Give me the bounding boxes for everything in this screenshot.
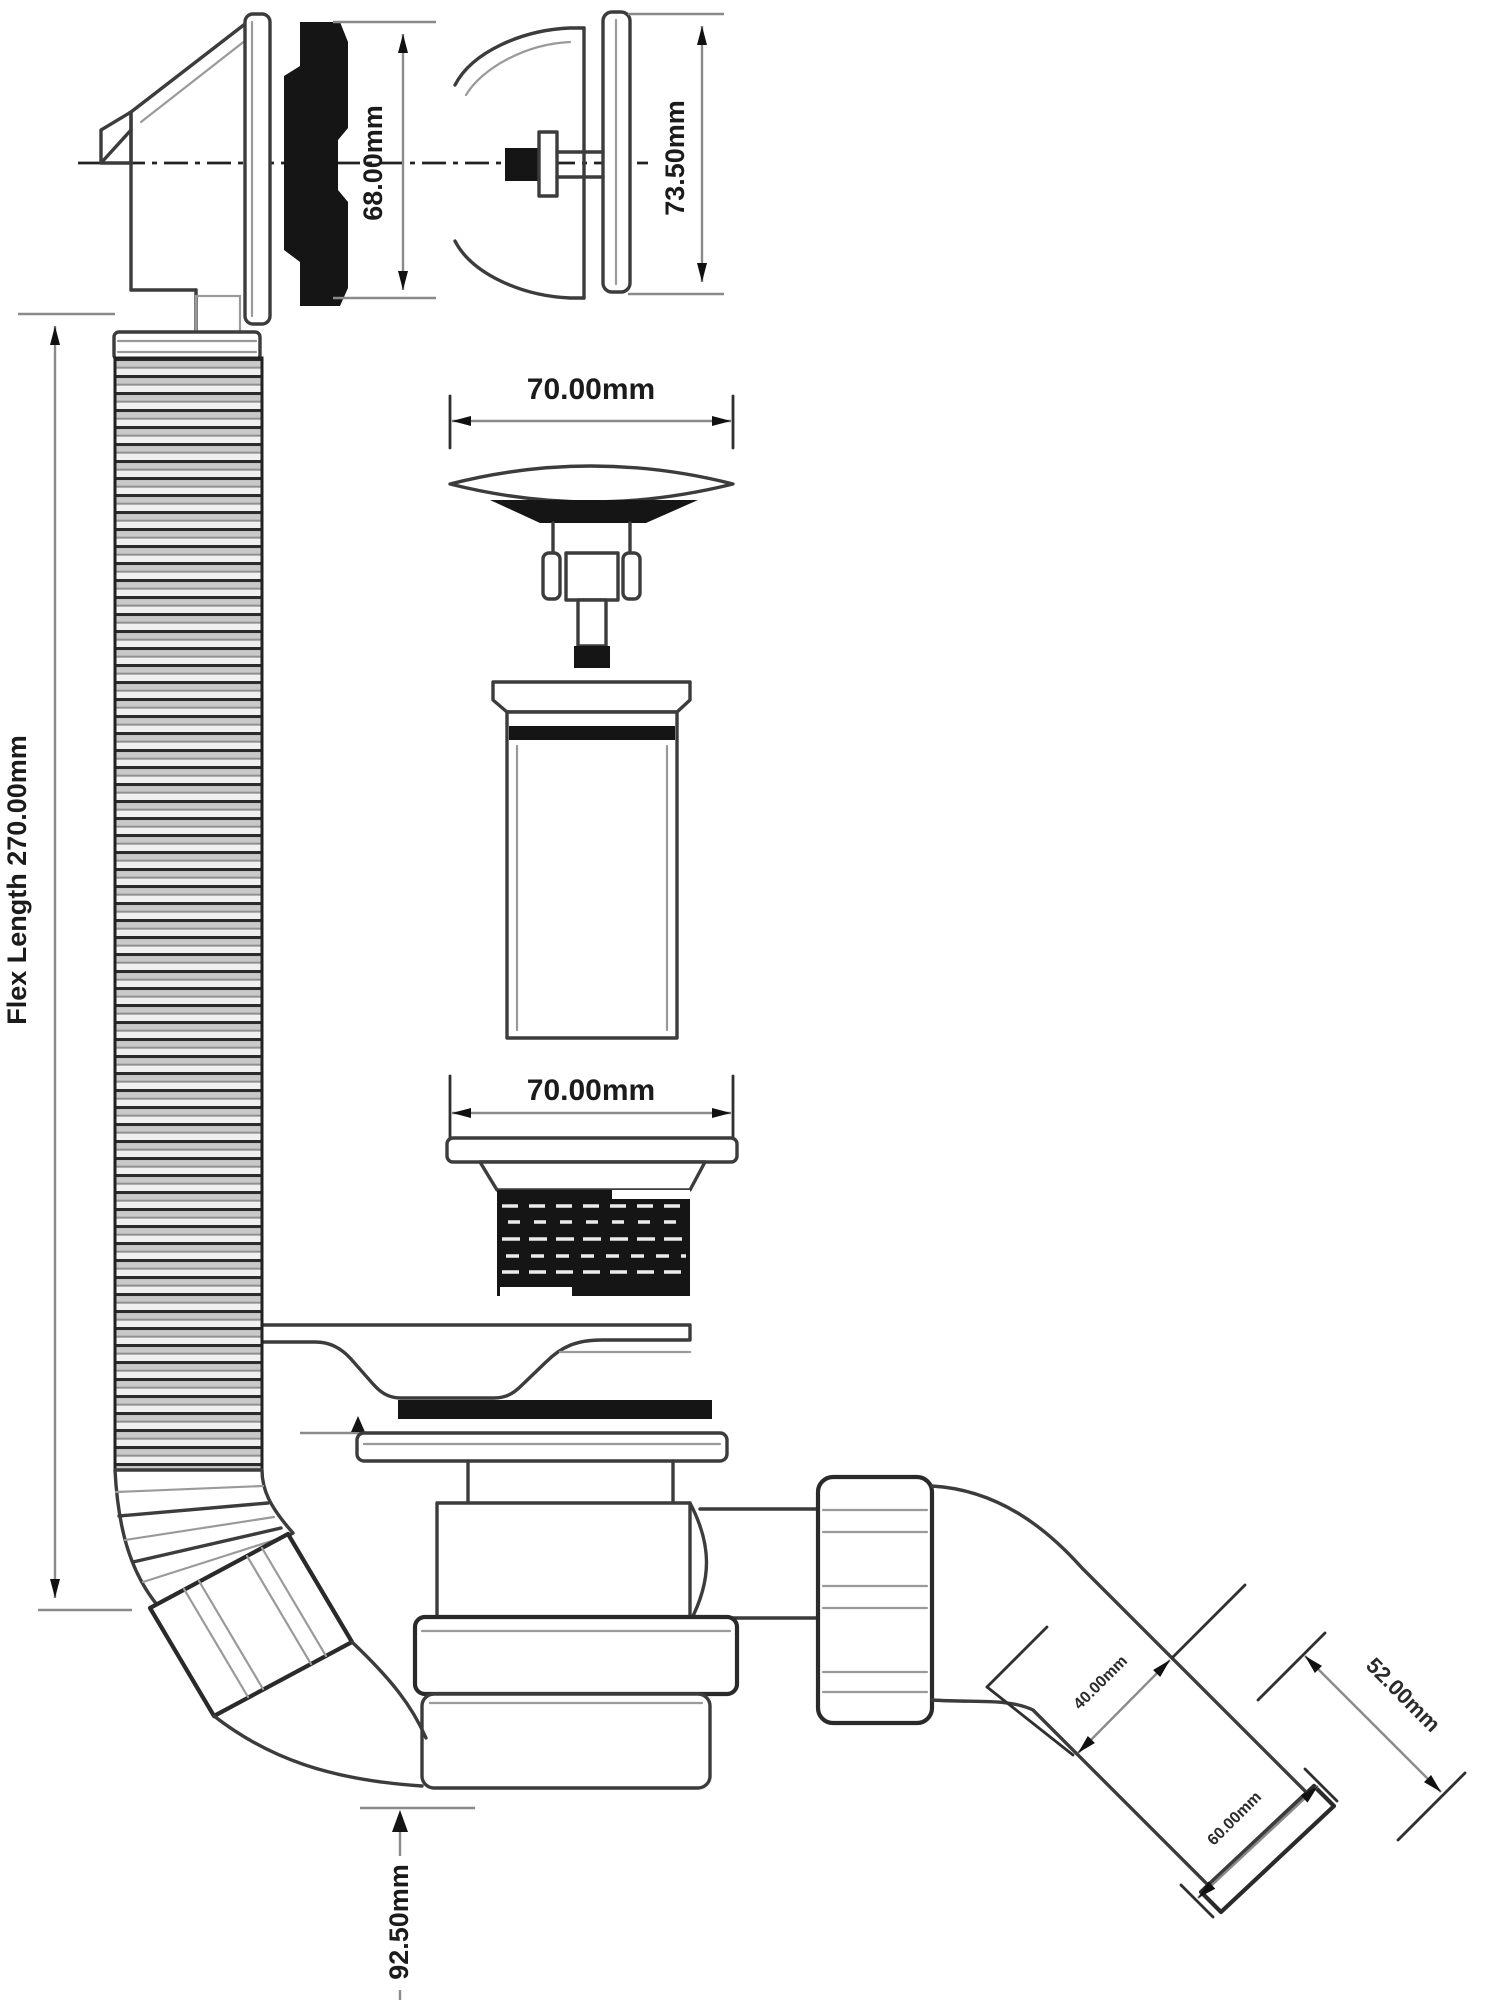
dimension-trap-depth: 92.50mm: [360, 1808, 475, 2000]
dim-label-70mm-plug: 70.00mm: [527, 373, 655, 406]
dimension-flex-length: Flex Length 270.00mm: [2, 314, 132, 1610]
trap-nut-band: [415, 1617, 737, 1694]
trap-cup: [422, 1694, 710, 1788]
flex-collar: [114, 332, 260, 360]
plug-tip: [574, 646, 610, 668]
flex-overflow-pipe: [115, 358, 293, 1606]
waste-cylinder: [493, 682, 690, 1038]
dim-label-flex-length: Flex Length 270.00mm: [2, 735, 32, 1025]
dim-label-68mm: 68.00mm: [358, 105, 388, 221]
dimension-plug-diameter: 70.00mm: [450, 373, 733, 448]
overflow-screw-head: [505, 148, 539, 181]
dim-label-92mm: 92.50mm: [384, 1864, 414, 1980]
dimension-faceplate-height: 73.50mm: [628, 14, 724, 294]
dim-label-73mm: 73.50mm: [660, 100, 690, 216]
thickness-arrow: [351, 1416, 365, 1432]
dimension-flange-diameter: 70.00mm: [450, 1074, 733, 1140]
trap-body: [415, 1461, 818, 1788]
outlet-end-collar: [1201, 1786, 1334, 1912]
dimension-outlet-bore: 40.00mm: [987, 1585, 1245, 1755]
outlet-compression-nut: [818, 1477, 932, 1723]
cylinder-oring: [509, 726, 675, 740]
rubber-washer: [398, 1400, 712, 1419]
overflow-elbow-body: [101, 14, 270, 332]
washer-and-backnut: [300, 1400, 727, 1461]
dimension-overflow-height: 68.00mm: [333, 22, 436, 298]
bath-waste-exploded-diagram: 68.00mm 73.50mm 70.00mm: [0, 0, 1488, 2000]
technical-drawing-page: 68.00mm 73.50mm 70.00mm: [0, 0, 1488, 2000]
dim-label-40mm: 40.00mm: [1071, 1653, 1131, 1713]
dim-label-70mm-flange: 70.00mm: [527, 1074, 655, 1107]
threaded-waste-flange: [447, 1138, 737, 1296]
bath-plug: [450, 466, 733, 668]
overflow-faceplate-assembly: [455, 12, 630, 298]
bath-shell-section: [245, 1325, 690, 1398]
